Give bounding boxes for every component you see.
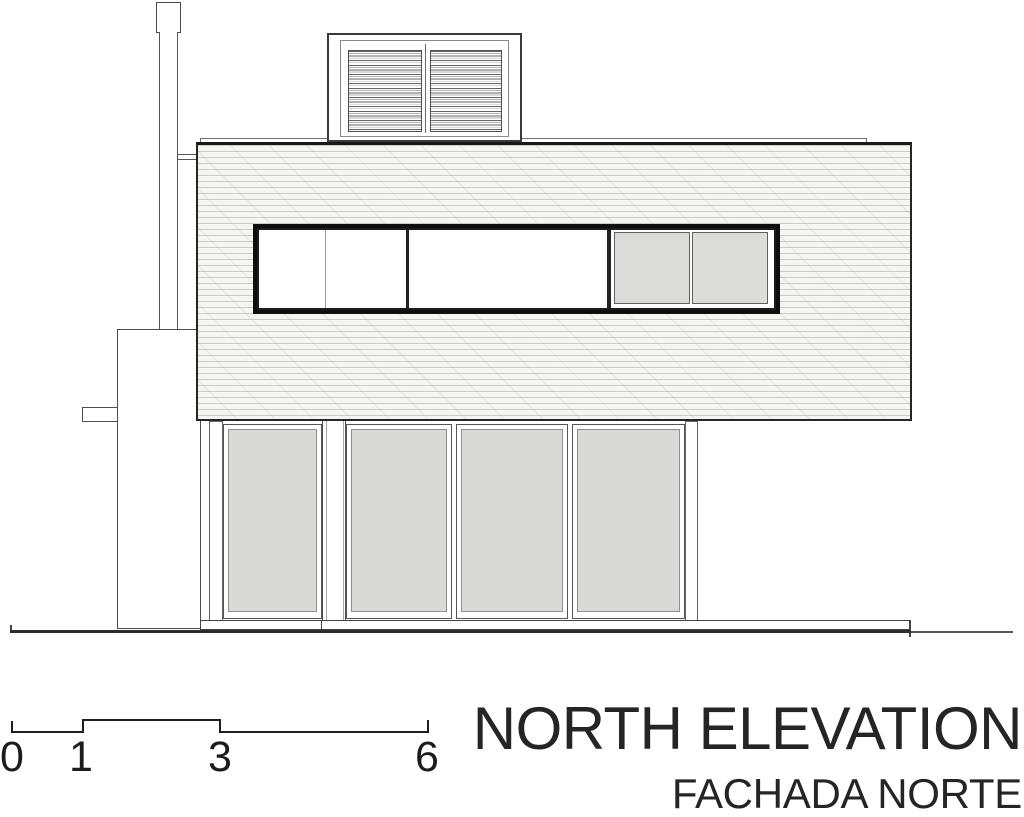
window-mullion-thin <box>325 230 326 308</box>
drawing-title: NORTH ELEVATION <box>473 699 1022 759</box>
ribbon-window-inner-frame <box>257 228 776 310</box>
louver-panel-right <box>430 50 502 132</box>
ground-line-extension <box>911 631 1013 633</box>
door-column-inner-lines <box>326 421 344 631</box>
scale-bar-segment-3-6 <box>219 731 429 733</box>
fireplace-volume <box>117 329 201 629</box>
scale-label-1: 1 <box>69 736 93 779</box>
scale-bar-segment-1-3 <box>82 719 221 721</box>
sliding-door-panel-2 <box>346 424 452 619</box>
window-glazed-pane-right <box>692 232 768 304</box>
ribbon-window <box>253 224 780 314</box>
scale-bar-step-1 <box>82 719 84 733</box>
door-glass-4 <box>577 429 680 612</box>
drawing-subtitle: FACHADA NORTE <box>672 773 1022 815</box>
door-jamb-left <box>209 421 223 621</box>
sliding-door-panel-1 <box>223 424 322 619</box>
slab-end-tick <box>909 620 911 637</box>
door-glass-2 <box>351 429 447 612</box>
scale-bar-tick-0 <box>11 721 13 733</box>
terrace-slab <box>200 620 911 630</box>
slab-joint-line <box>321 621 322 629</box>
window-glazed-pane-left <box>614 232 690 304</box>
scale-bar-tick-6 <box>427 720 429 733</box>
door-structural-column <box>322 421 346 631</box>
louver-panel-left <box>348 50 422 132</box>
ground-line <box>10 630 911 633</box>
sliding-door-panel-4 <box>572 424 685 619</box>
sliding-door-panel-3 <box>456 424 568 619</box>
door-jamb-right <box>685 421 698 621</box>
scale-label-0: 0 <box>0 736 24 779</box>
chimney-flue <box>159 32 178 329</box>
door-glass-1 <box>228 429 317 612</box>
upper-floor-wall <box>196 142 912 421</box>
elevation-drawing-canvas: 0 1 3 6 NORTH ELEVATION FACHADA NORTE <box>0 0 1024 817</box>
fireplace-ledge <box>82 407 118 422</box>
window-mullion-dark-2 <box>607 230 611 308</box>
scale-label-3: 3 <box>208 736 232 779</box>
ground-line-start-tick <box>10 625 12 630</box>
scale-label-6: 6 <box>415 736 439 779</box>
louver-center-mullion <box>425 44 426 133</box>
window-mullion-dark-1 <box>406 230 409 308</box>
door-glass-3 <box>461 429 563 612</box>
chimney-cap <box>156 2 181 33</box>
scale-bar-step-3 <box>219 719 221 733</box>
